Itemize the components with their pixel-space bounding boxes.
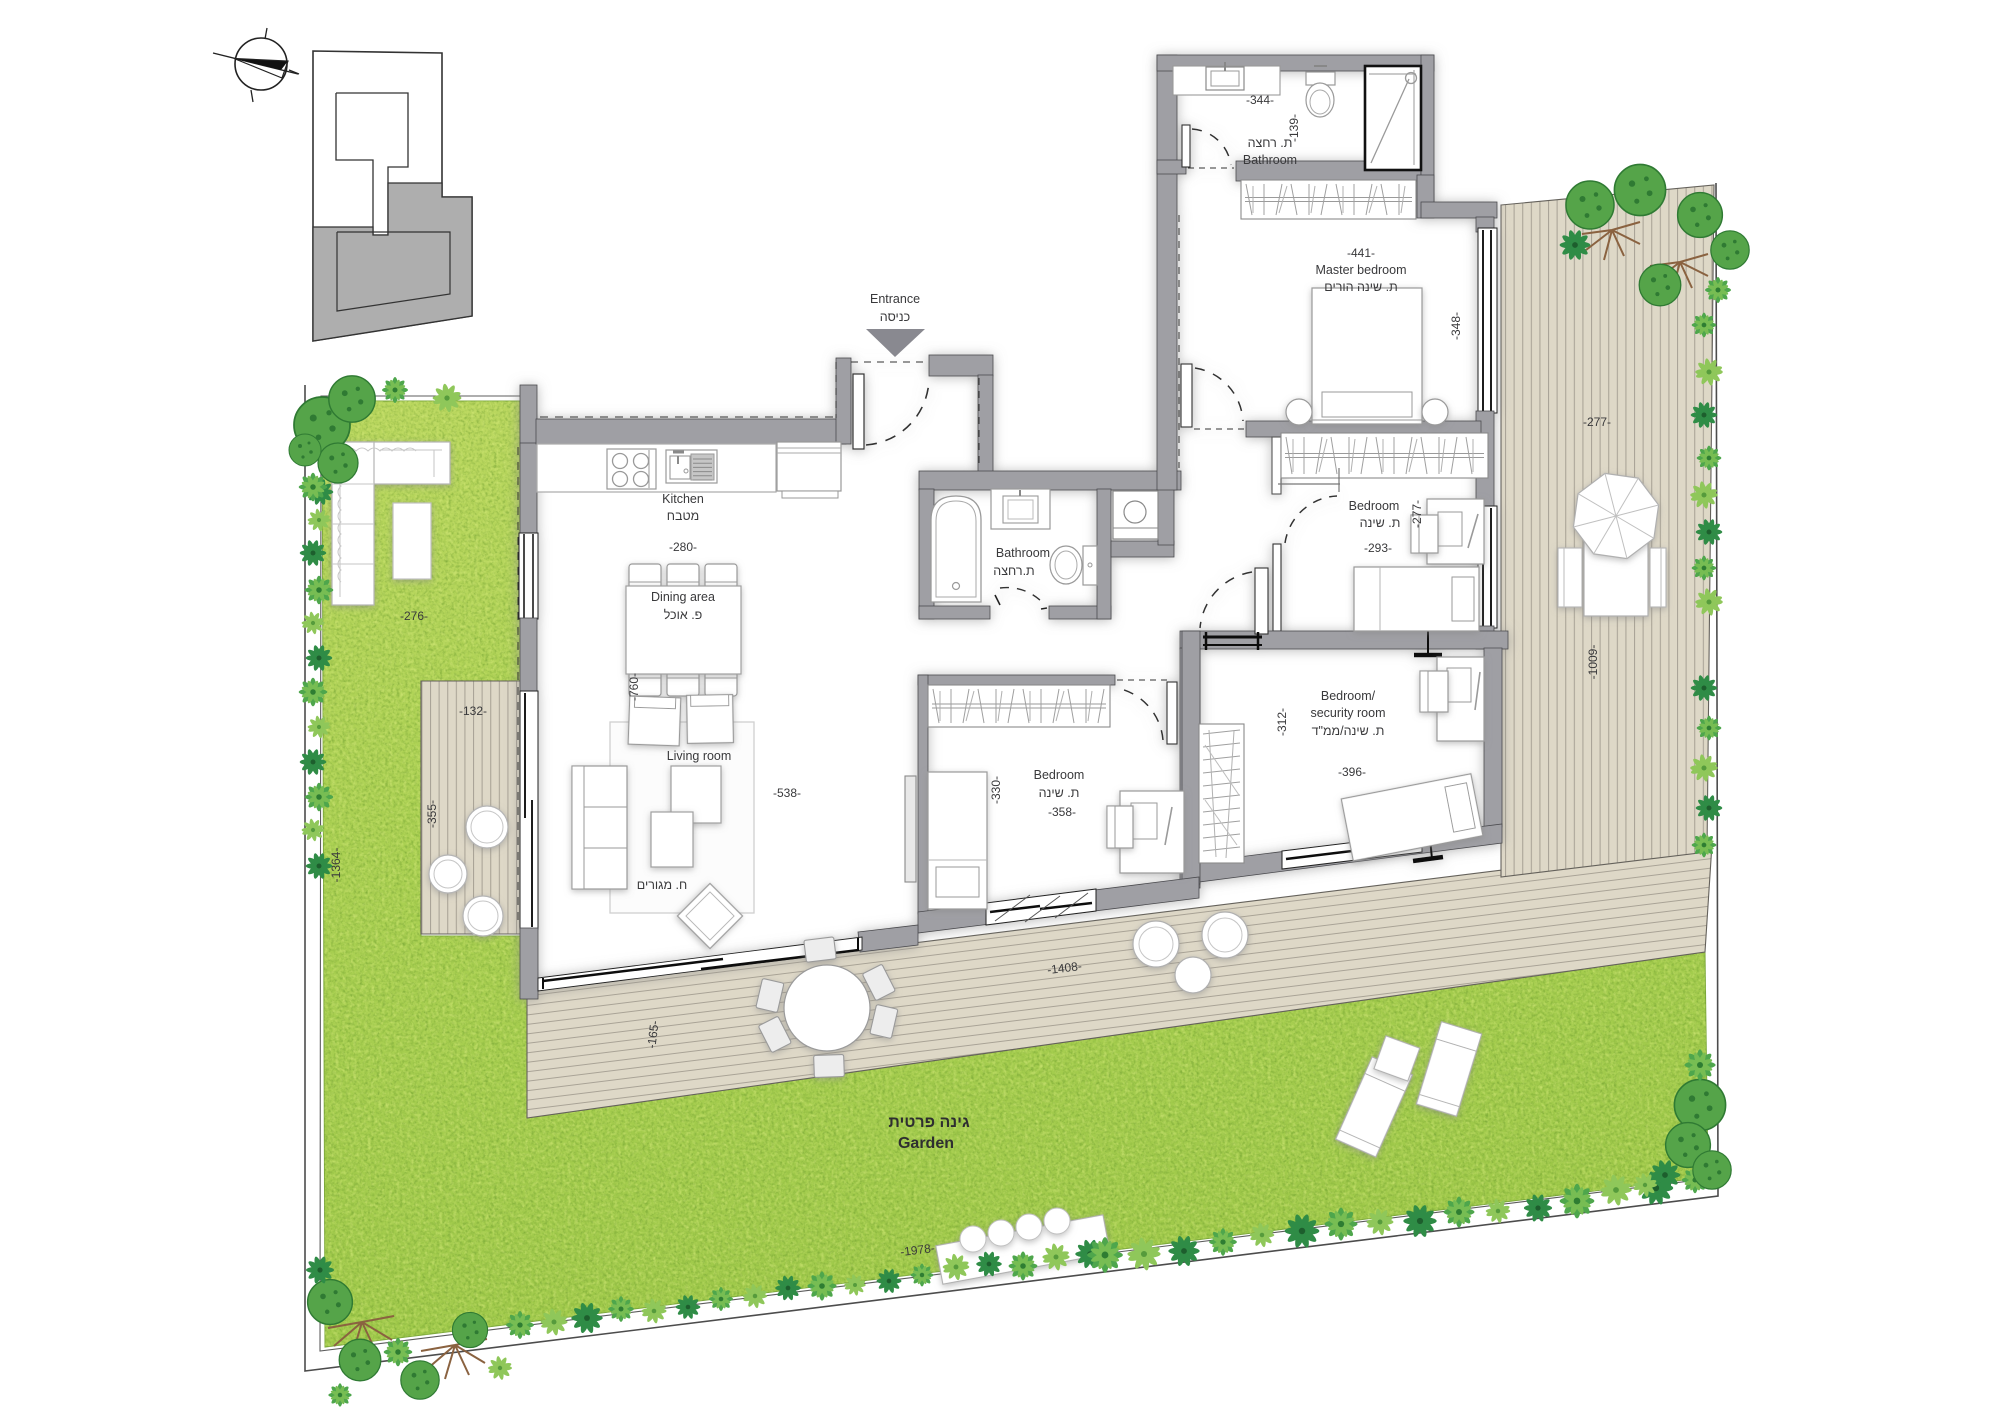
svg-text:-396-: -396- <box>1338 765 1366 779</box>
svg-text:ח. מגורים: ח. מגורים <box>637 878 687 892</box>
svg-text:Bedroom: Bedroom <box>1349 499 1400 513</box>
svg-text:ת. שינה: ת. שינה <box>1039 786 1080 800</box>
svg-text:Living room: Living room <box>667 749 732 763</box>
svg-text:-760-: -760- <box>627 673 641 701</box>
svg-text:ת. שינה הורים: ת. שינה הורים <box>1324 280 1398 294</box>
svg-text:Entrance: Entrance <box>870 292 920 306</box>
svg-text:ת. שינה: ת. שינה <box>1360 516 1401 530</box>
svg-text:Bedroom: Bedroom <box>1034 768 1085 782</box>
svg-text:-355-: -355- <box>425 800 439 828</box>
svg-text:Bathroom: Bathroom <box>1243 153 1297 167</box>
svg-text:-139-: -139- <box>1287 114 1301 142</box>
svg-text:-358-: -358- <box>1048 805 1076 819</box>
svg-text:Garden: Garden <box>898 1135 954 1152</box>
svg-text:-132-: -132- <box>459 704 487 718</box>
svg-text:ת.רחצה: ת.רחצה <box>993 564 1034 578</box>
svg-text:-538-: -538- <box>773 786 801 800</box>
svg-text:-344-: -344- <box>1246 93 1274 107</box>
svg-text:כניסה: כניסה <box>880 310 910 324</box>
svg-text:-1009-: -1009- <box>1586 645 1600 680</box>
svg-text:-277-: -277- <box>1583 415 1611 429</box>
svg-text:Master bedroom: Master bedroom <box>1315 263 1406 277</box>
svg-text:Bedroom/: Bedroom/ <box>1321 689 1376 703</box>
svg-text:-312-: -312- <box>1275 708 1289 736</box>
svg-text:-277-: -277- <box>1410 500 1424 528</box>
svg-text:גינה פרטית: גינה פרטית <box>888 1114 970 1131</box>
svg-text:פ. אוכל: פ. אוכל <box>664 608 703 622</box>
svg-text:-330-: -330- <box>989 776 1003 804</box>
svg-text:-441-: -441- <box>1347 246 1375 260</box>
svg-text:Kitchen: Kitchen <box>662 492 704 506</box>
svg-text:-293-: -293- <box>1364 541 1392 555</box>
svg-text:-280-: -280- <box>669 540 697 554</box>
svg-text:-348-: -348- <box>1449 312 1463 340</box>
svg-text:security room: security room <box>1310 706 1385 720</box>
svg-text:מטבח: מטבח <box>667 509 699 523</box>
svg-text:-276-: -276- <box>400 609 428 623</box>
svg-text:Bathroom: Bathroom <box>996 546 1050 560</box>
svg-text:Dining area: Dining area <box>651 590 715 604</box>
svg-text:ת. שינה/ממ"ד: ת. שינה/ממ"ד <box>1312 724 1385 738</box>
svg-text:ת. רחצה: ת. רחצה <box>1248 136 1293 150</box>
